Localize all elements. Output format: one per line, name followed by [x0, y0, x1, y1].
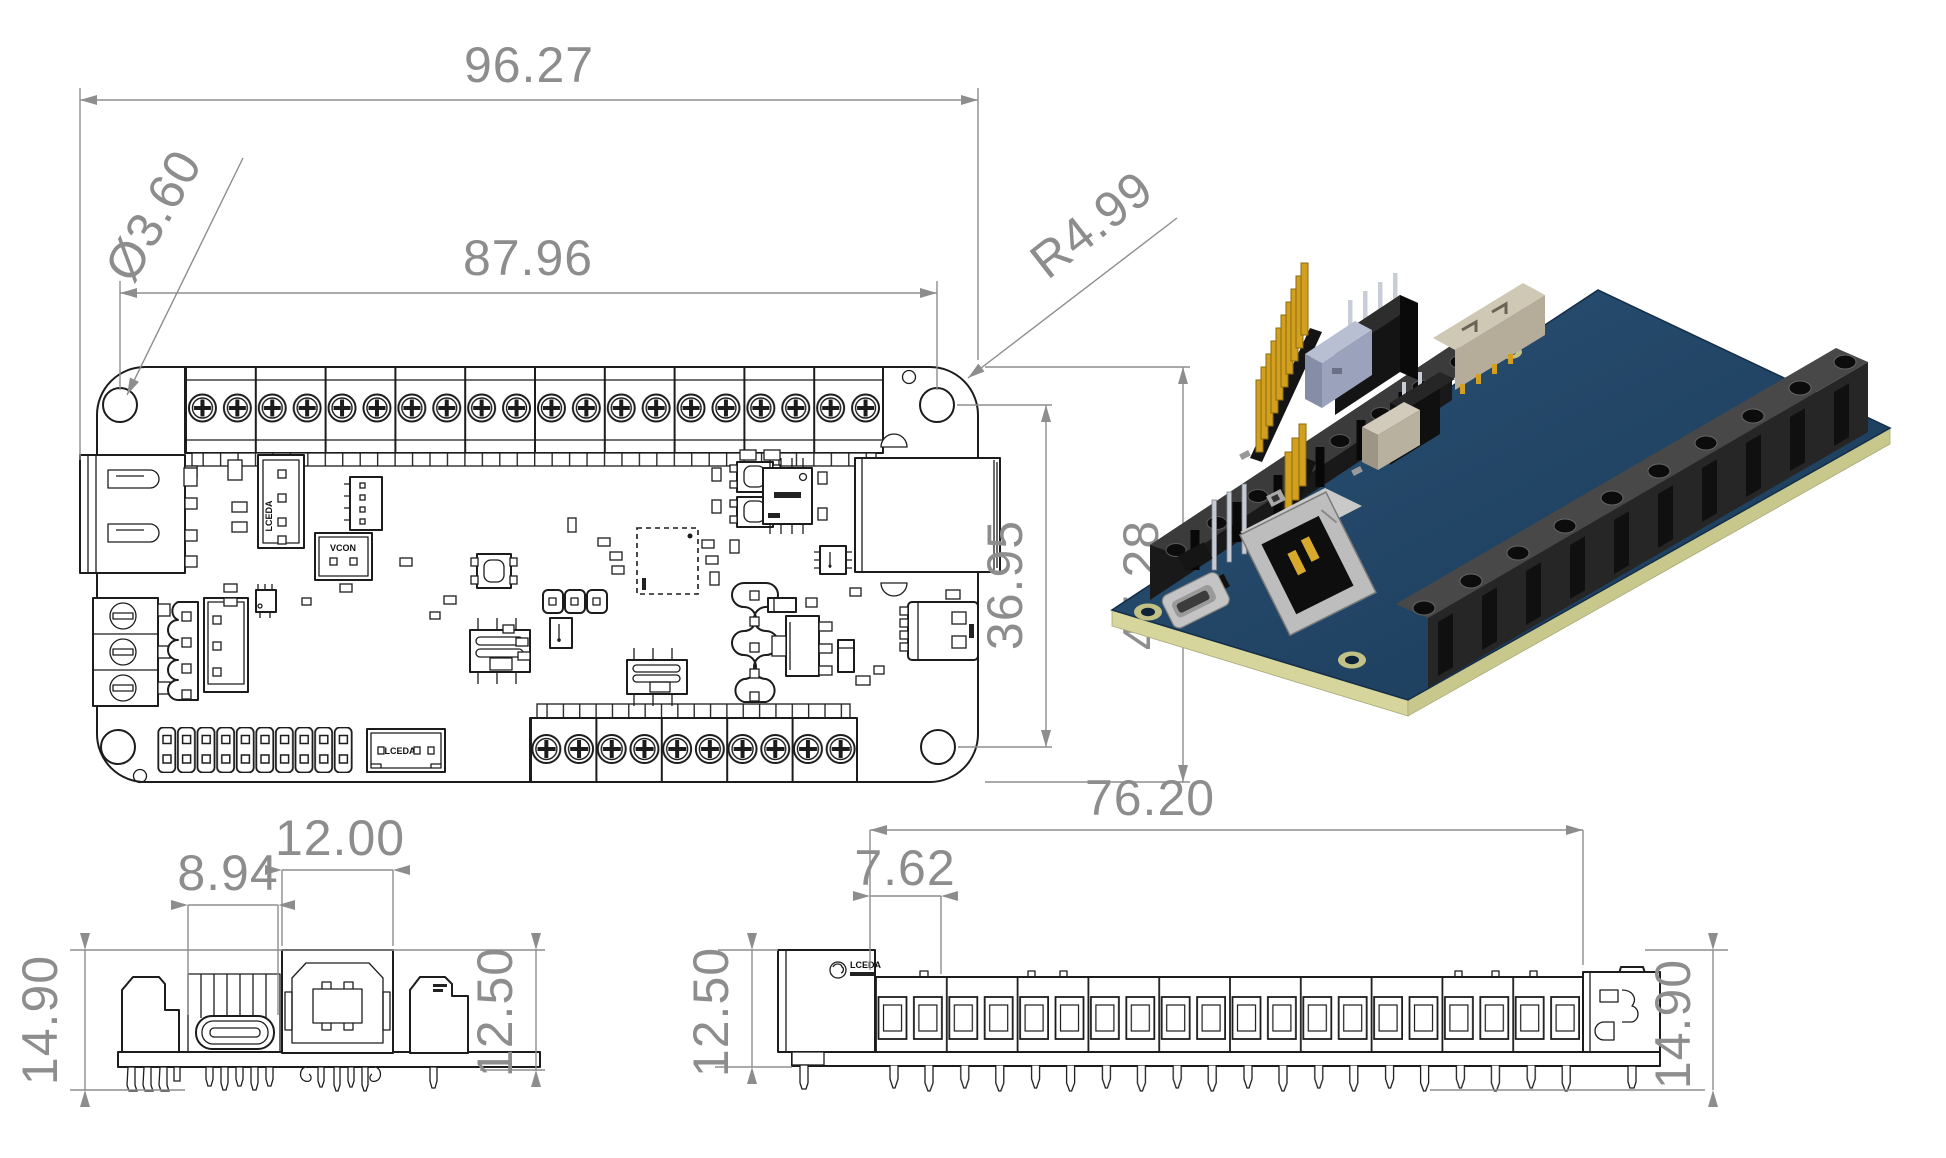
svg-text:8.94: 8.94	[177, 845, 278, 901]
passive	[712, 500, 721, 513]
small-part	[228, 460, 242, 480]
usb-c-front	[188, 974, 280, 1052]
silkscreen-vcon: VCON	[330, 543, 356, 553]
terminal-row-side	[875, 971, 1583, 1052]
passive	[232, 522, 247, 532]
passive	[818, 472, 827, 484]
svg-text:36.95: 36.95	[977, 520, 1033, 650]
svg-text:14.90: 14.90	[12, 955, 68, 1085]
render-3d	[1112, 263, 1890, 716]
usb-b-front	[282, 950, 393, 1053]
passive	[740, 450, 756, 460]
pins-front	[127, 1067, 437, 1091]
dim-terminal-row-length: 76.20	[870, 770, 1583, 970]
board-edge-side	[792, 1052, 1660, 1066]
small-dfn	[814, 546, 852, 574]
passive	[764, 450, 780, 460]
dim-side-connector-height: 12.50	[683, 933, 792, 1084]
svg-text:12.50: 12.50	[683, 947, 739, 1077]
screw-terminal-left	[93, 598, 170, 706]
silkscreen-lceda-2: LCEDA	[385, 746, 416, 756]
dim-usbb-width: 12.00	[265, 810, 410, 946]
terminal-silhouette-left	[122, 977, 179, 1052]
svg-text:R4.99: R4.99	[1020, 160, 1164, 289]
connector-3pin	[204, 598, 248, 692]
jumper-pads	[543, 590, 607, 613]
top-view: LCEDA VCON	[80, 37, 1190, 783]
silkscreen-lceda-1: LCEDA	[264, 500, 274, 531]
svg-text:76.20: 76.20	[1085, 770, 1215, 826]
small-part	[184, 468, 197, 486]
front-view: 8.94 12.00 14.90 12.50	[12, 810, 545, 1107]
usb-a-side: LCEDA	[778, 950, 881, 1089]
logo-text: LCEDA	[850, 960, 881, 970]
connector-lceda-bottom: LCEDA	[367, 729, 445, 772]
dim-hole-diameter: Ø3.60	[94, 140, 243, 397]
engineering-drawing-page: LCEDA VCON	[0, 0, 1946, 1158]
passive	[818, 508, 827, 520]
micro-usb-connector-top	[900, 602, 978, 660]
svg-text:87.96: 87.96	[463, 230, 593, 286]
pin-header-2x10	[157, 727, 353, 773]
svg-text:12.50: 12.50	[467, 947, 523, 1077]
drawing-canvas: LCEDA VCON	[0, 0, 1946, 1158]
passive	[712, 468, 721, 481]
dim-corner-radius: R4.99	[965, 160, 1177, 382]
svg-text:12.00: 12.00	[275, 810, 405, 866]
svg-text:7.62: 7.62	[854, 840, 955, 896]
passive	[232, 502, 247, 512]
small-ic	[550, 618, 572, 648]
svg-text:14.90: 14.90	[1645, 959, 1701, 1089]
side-view: LCEDA 76.20 7.62 12.50	[683, 770, 1728, 1107]
tact-switch-1	[471, 554, 517, 588]
svg-text:Ø3.60: Ø3.60	[94, 140, 213, 290]
terminal-silhouette-right	[410, 977, 468, 1053]
main-mcu-qfn	[637, 528, 698, 594]
connector-4pin-side	[344, 477, 382, 530]
svg-text:96.27: 96.27	[464, 37, 594, 93]
soic8-ic	[763, 458, 812, 534]
usb-a-connector-top	[80, 455, 197, 573]
terminal-row-bottom	[530, 704, 857, 782]
connector-vcon: VCON	[315, 533, 372, 580]
connector-lceda-vertical: LCEDA	[258, 455, 304, 548]
